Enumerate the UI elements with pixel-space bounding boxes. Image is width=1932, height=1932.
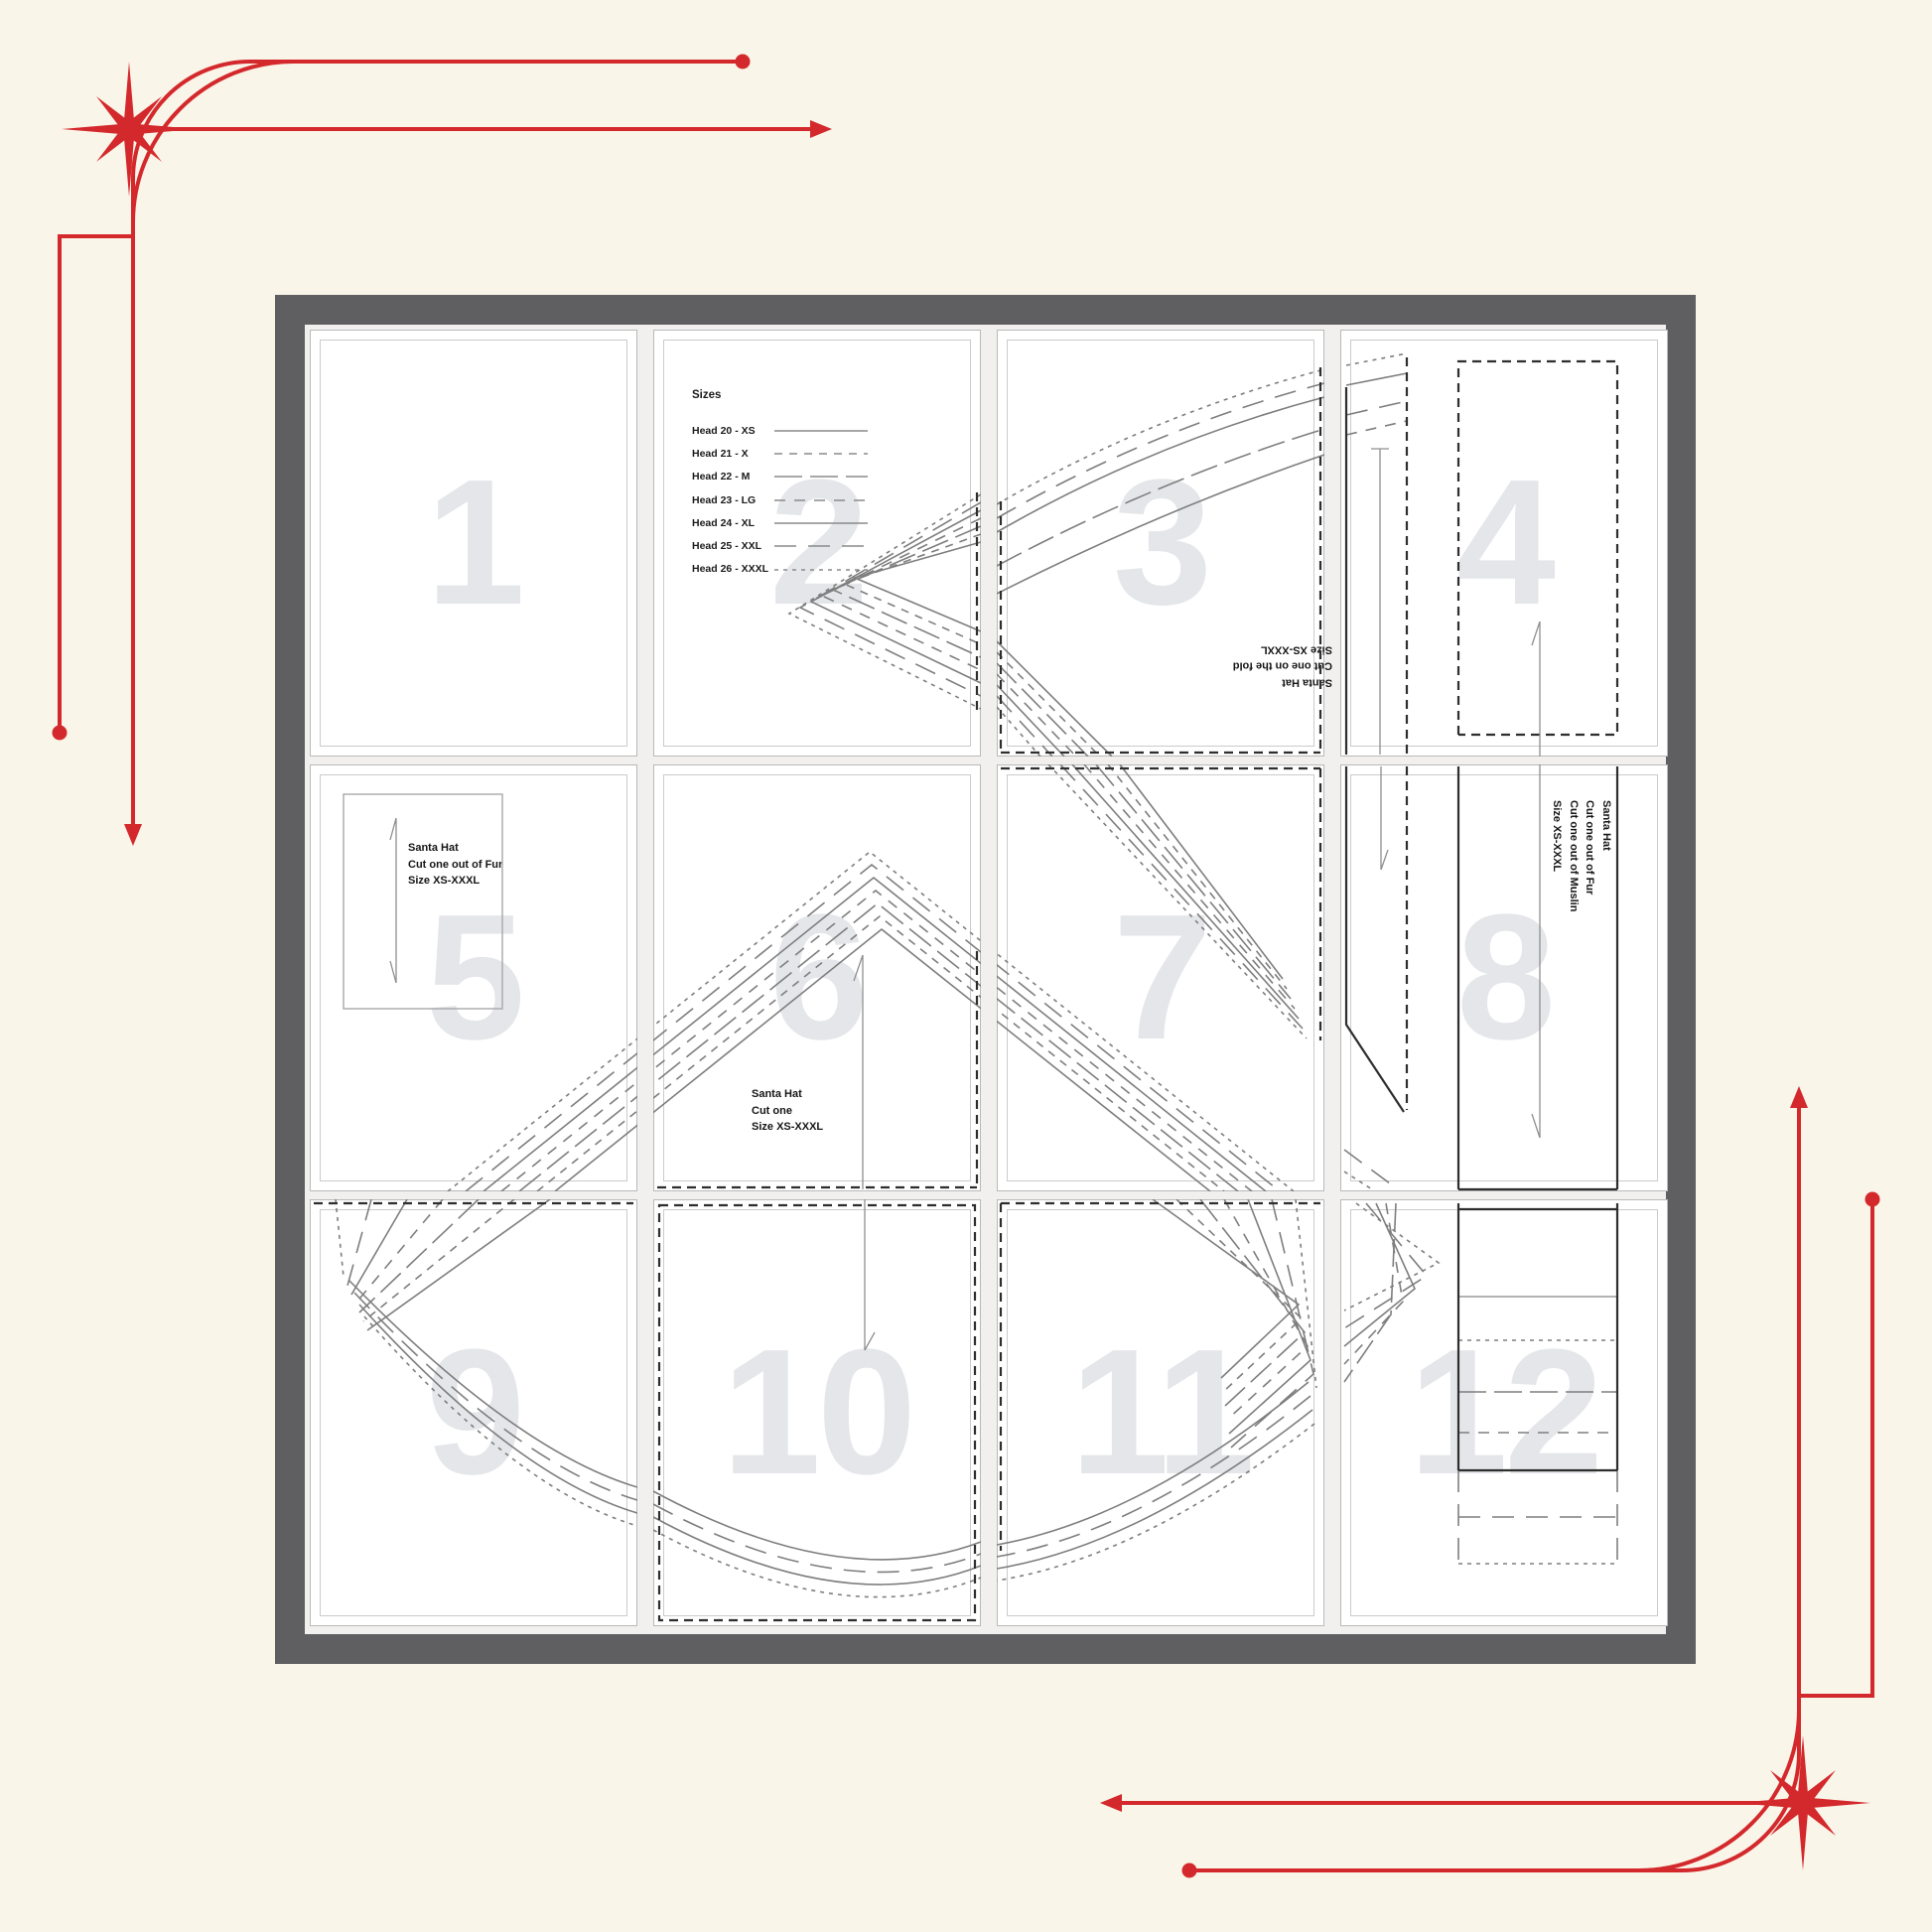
legend-entry: Head 21 - X (692, 442, 871, 465)
page-tile-9: 9 (310, 1199, 637, 1626)
piece-label-line: Cut one out of Muslin (1566, 800, 1583, 927)
page-number: 1 (426, 454, 521, 632)
page-tile-1: 1 (310, 330, 637, 757)
legend-entry: Head 26 - XXXL (692, 558, 871, 581)
size-legend: Sizes Head 20 - XS Head 21 - X Head 22 -… (692, 389, 871, 581)
piece-label-line: Size XS-XXXL (408, 873, 502, 890)
page-tile-4: 4 (1340, 330, 1668, 757)
page-number: 12 (1409, 1323, 1599, 1502)
page-tile-5: 5 (310, 764, 637, 1191)
piece-label-line: Santa Hat (752, 1086, 823, 1103)
page-tile-7: 7 (997, 764, 1324, 1191)
piece-label-line: Santa Hat (1598, 800, 1615, 927)
page-tile-3: 3 (997, 330, 1324, 757)
page-number: 6 (769, 889, 865, 1067)
piece-label-line: Santa Hat (1217, 674, 1332, 691)
page-number: 8 (1456, 889, 1552, 1067)
piece-label-line: Santa Hat (408, 840, 502, 857)
santa-hat-pattern-preview: 1 2 3 4 5 6 7 8 9 10 11 12 Sizes Head 20… (0, 0, 1932, 1932)
piece-label-line: Size XS-XXXL (1549, 800, 1566, 927)
page-number: 4 (1456, 454, 1552, 632)
page-number: 5 (426, 889, 521, 1067)
piece-label-fold: Santa Hat Cut one on the fold Size XS-XX… (1217, 641, 1332, 691)
page-number: 9 (426, 1323, 521, 1502)
page-number: 3 (1113, 454, 1208, 632)
piece-label-band: Santa Hat Cut one out of Fur Cut one out… (1545, 800, 1614, 927)
legend-entry: Head 20 - XS (692, 419, 871, 442)
legend-entry: Head 25 - XXL (692, 534, 871, 557)
piece-label-line: Cut one out of Fur (408, 857, 502, 874)
legend-entry: Head 23 - LG (692, 488, 871, 511)
legend-entry: Head 22 - M (692, 466, 871, 488)
piece-label-line: Size XS-XXXL (1217, 641, 1332, 658)
page-number: 7 (1113, 889, 1208, 1067)
piece-label-main: Santa Hat Cut one Size XS-XXXL (752, 1086, 823, 1136)
page-number: 10 (722, 1323, 912, 1502)
page-tile-8: 8 (1340, 764, 1668, 1191)
piece-label-line: Size XS-XXXL (752, 1119, 823, 1136)
legend-entry: Head 24 - XL (692, 511, 871, 534)
page-tile-12: 12 (1340, 1199, 1668, 1626)
page-number: 11 (1070, 1323, 1251, 1502)
piece-label-line: Cut one out of Fur (1582, 800, 1598, 927)
page-tile-11: 11 (997, 1199, 1324, 1626)
piece-label-line: Cut one (752, 1103, 823, 1120)
piece-label-fur: Santa Hat Cut one out of Fur Size XS-XXX… (408, 840, 502, 890)
piece-label-line: Cut one on the fold (1217, 658, 1332, 675)
legend-title: Sizes (692, 389, 871, 403)
page-tile-10: 10 (653, 1199, 981, 1626)
